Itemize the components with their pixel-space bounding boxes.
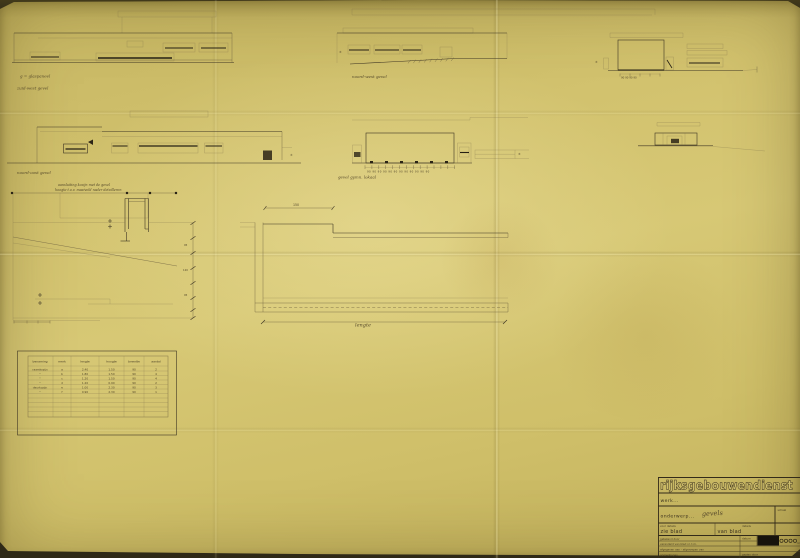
table-cell: 1.20: [82, 381, 88, 385]
drawing-stroke: [13, 237, 177, 266]
elevation-mid-middle: ± 90 90 90 90 90 90 90 90 90 90 90 90 ge…: [338, 118, 529, 180]
drawing-stroke: [687, 51, 727, 56]
drawing-stroke: [687, 44, 723, 49]
level-mark: ±: [518, 152, 521, 156]
drawing-stroke: [440, 47, 452, 57]
elevation-top-middle: ± noord-west gevel: [337, 28, 507, 79]
drawing-stroke: [352, 9, 655, 15]
werk-label: werk...: [661, 498, 679, 504]
table-cell: 1.20: [82, 377, 88, 381]
table-grid-lines: [28, 356, 168, 417]
table-cell: 2: [155, 381, 157, 385]
drawing-stroke: [475, 150, 529, 159]
drawing-stroke: [28, 356, 168, 417]
table-cell: 2.30: [108, 386, 114, 390]
drawing-linework: g = glaspaneel zuid-west gevel ± noord-w…: [0, 0, 800, 558]
drawing-stroke: [122, 17, 212, 33]
table-cell: 90: [132, 368, 136, 372]
table-cell: 90: [132, 377, 136, 381]
drawing-stroke: [263, 224, 508, 233]
table-cell: 4: [155, 372, 157, 376]
drawing-stroke: [18, 351, 177, 435]
table-cell: 1.50: [108, 372, 114, 376]
drawing-stroke: [610, 33, 683, 38]
table-cell: 4: [155, 377, 157, 381]
agency-name: rijksgebouwendienst: [660, 478, 793, 493]
dim-150: 150: [293, 203, 299, 207]
table-header: breedte: [128, 360, 140, 364]
schaal-label: schaal: [778, 508, 787, 512]
table-cell: deurkozijn: [33, 386, 48, 390]
level-mark: ±: [290, 153, 293, 157]
drawing-stroke: [352, 118, 528, 121]
datum-label: datum: [742, 537, 751, 541]
drawing-stroke: [789, 539, 792, 542]
black-stamp-box: [758, 536, 780, 546]
note-line2: hoogte t.o.v. maaiveld nader detailleren: [55, 188, 121, 192]
zie-blad-label: zie blad: [661, 529, 683, 535]
drawing-stroke: [108, 219, 112, 229]
drawing-stroke: [446, 58, 448, 61]
table-cell: 0.90: [82, 390, 88, 394]
drawing-stroke: [149, 192, 151, 194]
van-blad-label: van blad: [718, 529, 742, 535]
drawing-stroke: [333, 233, 508, 238]
note-line1: aansluiting kozijn met de gevel: [58, 183, 110, 187]
drawing-stroke: [88, 140, 93, 146]
drawing-stroke: [366, 133, 454, 163]
drawing-stroke: [205, 143, 224, 153]
elevation-mid-left: ± noord-oost gevel: [7, 111, 301, 175]
drawing-stroke: [125, 199, 149, 242]
details-label: details: [742, 524, 752, 528]
drawing-stroke: [118, 11, 216, 17]
voor-details-label: voor details: [660, 524, 676, 528]
drawing-stroke: [666, 57, 674, 70]
level-mark: ±: [339, 50, 342, 54]
table-cell: 1.00: [82, 386, 88, 390]
drawing-stroke: [780, 539, 783, 542]
table-cell: 1.80: [82, 372, 88, 376]
drawing-stroke: [445, 161, 448, 163]
drawing-stroke: [40, 132, 282, 137]
drawing-stroke: [130, 111, 208, 117]
drawing-stroke: [112, 143, 129, 153]
dim-v1: 95: [184, 243, 188, 247]
drawing-stroke: [657, 123, 700, 127]
level-mark: ±: [595, 60, 598, 64]
table-cell: 90: [132, 386, 136, 390]
elevation-top-right: ± 90 90 90 90: [595, 33, 757, 80]
caption-elev1-line1: g = glaspaneel: [20, 74, 51, 79]
drawing-stroke: [667, 60, 672, 68]
drawing-stroke: [175, 192, 177, 194]
drawing-stroke: [13, 243, 110, 258]
table-cell: 1.50: [108, 368, 114, 372]
table-header: lengte: [80, 360, 90, 364]
drawing-stroke: [440, 58, 442, 61]
drawing-stroke: [451, 58, 453, 61]
drawing-stroke: [793, 539, 796, 542]
afgegeven-label: afgegeven aan - afgeroepen van: [660, 547, 704, 551]
drawing-stroke: [743, 70, 757, 71]
drawing-stroke: [604, 58, 609, 69]
drawing-stroke: [37, 127, 282, 163]
drawing-stroke: [424, 59, 426, 62]
veranderd-label: veranderd van blad nr. t.m.: [660, 542, 697, 546]
table-cell: 2.30: [108, 390, 114, 394]
drawing-stroke: [343, 28, 473, 33]
table-cell: b: [61, 372, 63, 376]
caption-elev4: noord-oost gevel: [17, 170, 52, 175]
getekend-label: getekend door: [660, 537, 680, 541]
drawing-stroke: [30, 52, 60, 60]
faint-top-outline: [352, 9, 655, 15]
table-cell: a: [61, 368, 63, 372]
drawing-stroke: [60, 193, 148, 218]
drawing-stroke: [784, 539, 787, 542]
drawing-stroke: [138, 143, 198, 153]
table-header: benaming: [32, 360, 47, 364]
table-cell: 90: [132, 372, 136, 376]
table-header: aantal: [151, 360, 161, 364]
drawing-stroke: [255, 223, 263, 313]
table-cell: 1.50: [108, 377, 114, 381]
materials-table: benamingmerklengtehoogtebreedteaantalraa…: [18, 351, 177, 435]
table-cell: 1: [155, 390, 157, 394]
table-cell: d: [61, 381, 63, 385]
drawing-stroke: [354, 152, 361, 157]
dim-v2: 120: [183, 268, 188, 272]
table-cell: 2: [155, 368, 157, 372]
dim-v3: 95: [184, 293, 188, 297]
onderwerp-label: onderwerp...: [661, 514, 695, 520]
drawing-stroke: [419, 59, 421, 62]
caption-elev5: gevel gymn. lokaal: [338, 175, 377, 180]
drawing-stroke: [385, 161, 388, 163]
drawing-stroke: [263, 151, 272, 161]
opmerkingen-label: opmerkingen...: [660, 553, 681, 557]
drawing-stroke: [400, 161, 403, 163]
long-plan-strip: 150 lengte: [240, 203, 508, 329]
table-cell: 0.90: [108, 381, 114, 385]
table-cell: 3: [155, 386, 157, 390]
drawing-stroke: [11, 192, 13, 194]
drawing-stroke: [408, 60, 410, 63]
table-cell: e: [61, 386, 63, 390]
drawing-stroke: [370, 161, 373, 163]
drawing-stroke: [126, 192, 128, 194]
title-block: rijksgebouwendienst werk... onderwerp...…: [658, 478, 800, 558]
drawing-stroke: [413, 60, 415, 63]
drawing-stroke: [255, 303, 508, 312]
blad-number-circles: [780, 539, 797, 542]
drawing-stroke: [618, 40, 664, 70]
onderwerp-value: gevels: [702, 509, 724, 518]
table-cell: 2.40: [82, 368, 88, 372]
drawing-stroke: [713, 147, 765, 152]
drawing-stroke: [415, 161, 418, 163]
drawing-stroke: [430, 161, 433, 163]
drawing-stroke: [430, 59, 432, 62]
dim-string-elev5: 90 90 90 90 90 90 90 90 90 90 90 90: [367, 170, 430, 174]
scanned-drawing-photo: g = glaspaneel zuid-west gevel ± noord-w…: [0, 0, 800, 558]
table-header: merk: [58, 360, 66, 364]
drawing-stroke: [671, 139, 679, 143]
table-header: hoogte: [106, 360, 117, 364]
drawing-stroke: [350, 59, 507, 65]
table-cell: raamkozijn: [32, 368, 48, 372]
detail-section-plan: aansluiting kozijn met de gevel hoogte t…: [12, 183, 193, 322]
caption-elev2: noord-west gevel: [352, 74, 387, 79]
drawing-stroke: [435, 59, 437, 62]
dim-string-elev3: 90 90 90 90: [621, 76, 637, 80]
table-cell: 90: [132, 390, 136, 394]
elevation-mid-right: [638, 123, 765, 152]
elevation-top-left: g = glaspaneel zuid-west gevel: [12, 11, 234, 91]
label-lengte: lengte: [355, 323, 371, 329]
caption-elev1-line2: zuid-west gevel: [16, 86, 49, 91]
drawing-stroke: [240, 223, 255, 228]
table-cell: 90: [132, 381, 136, 385]
gezien-label: gezien door: [742, 553, 759, 557]
drawing-stroke: [127, 41, 143, 47]
